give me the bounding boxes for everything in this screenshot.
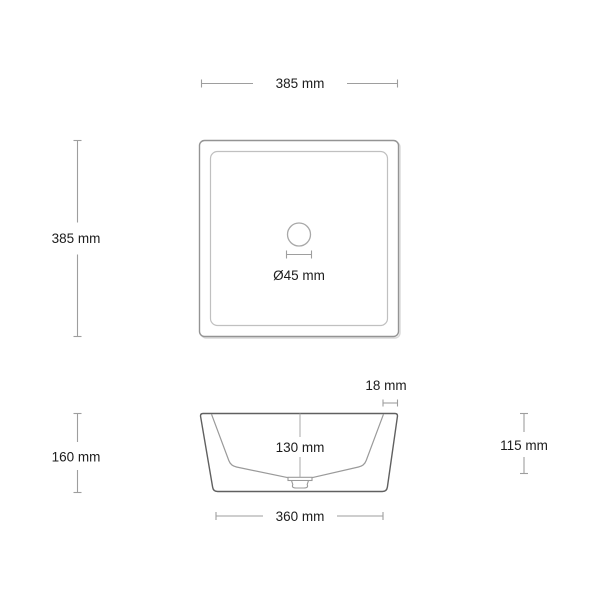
technical-drawing-canvas: Ø45 mm 385 mm 385 mm (0, 0, 600, 600)
top-width-label: 385 mm (276, 76, 325, 91)
base-width-dimension: 360 mm (216, 509, 383, 524)
plan-outer-edge (200, 141, 399, 337)
rim-thickness-label: 18 mm (365, 378, 406, 393)
drain-diameter-label: Ø45 mm (273, 268, 325, 283)
top-width-dimension: 385 mm (202, 76, 398, 91)
basin-dimension-drawing: Ø45 mm 385 mm 385 mm (0, 0, 600, 600)
plan-view: Ø45 mm (200, 141, 401, 339)
total-height-dimension: 160 mm (52, 414, 101, 493)
side-height-dimension: 115 mm (500, 414, 548, 474)
side-view: 130 mm (201, 414, 398, 492)
rim-thickness-dimension: 18 mm (365, 378, 406, 407)
inner-depth-label: 130 mm (276, 440, 325, 455)
total-height-label: 160 mm (52, 450, 101, 465)
base-width-label: 360 mm (276, 509, 325, 524)
side-height-label: 115 mm (500, 438, 548, 453)
plan-depth-dimension: 385 mm (52, 141, 101, 337)
plan-depth-label: 385 mm (52, 231, 101, 246)
